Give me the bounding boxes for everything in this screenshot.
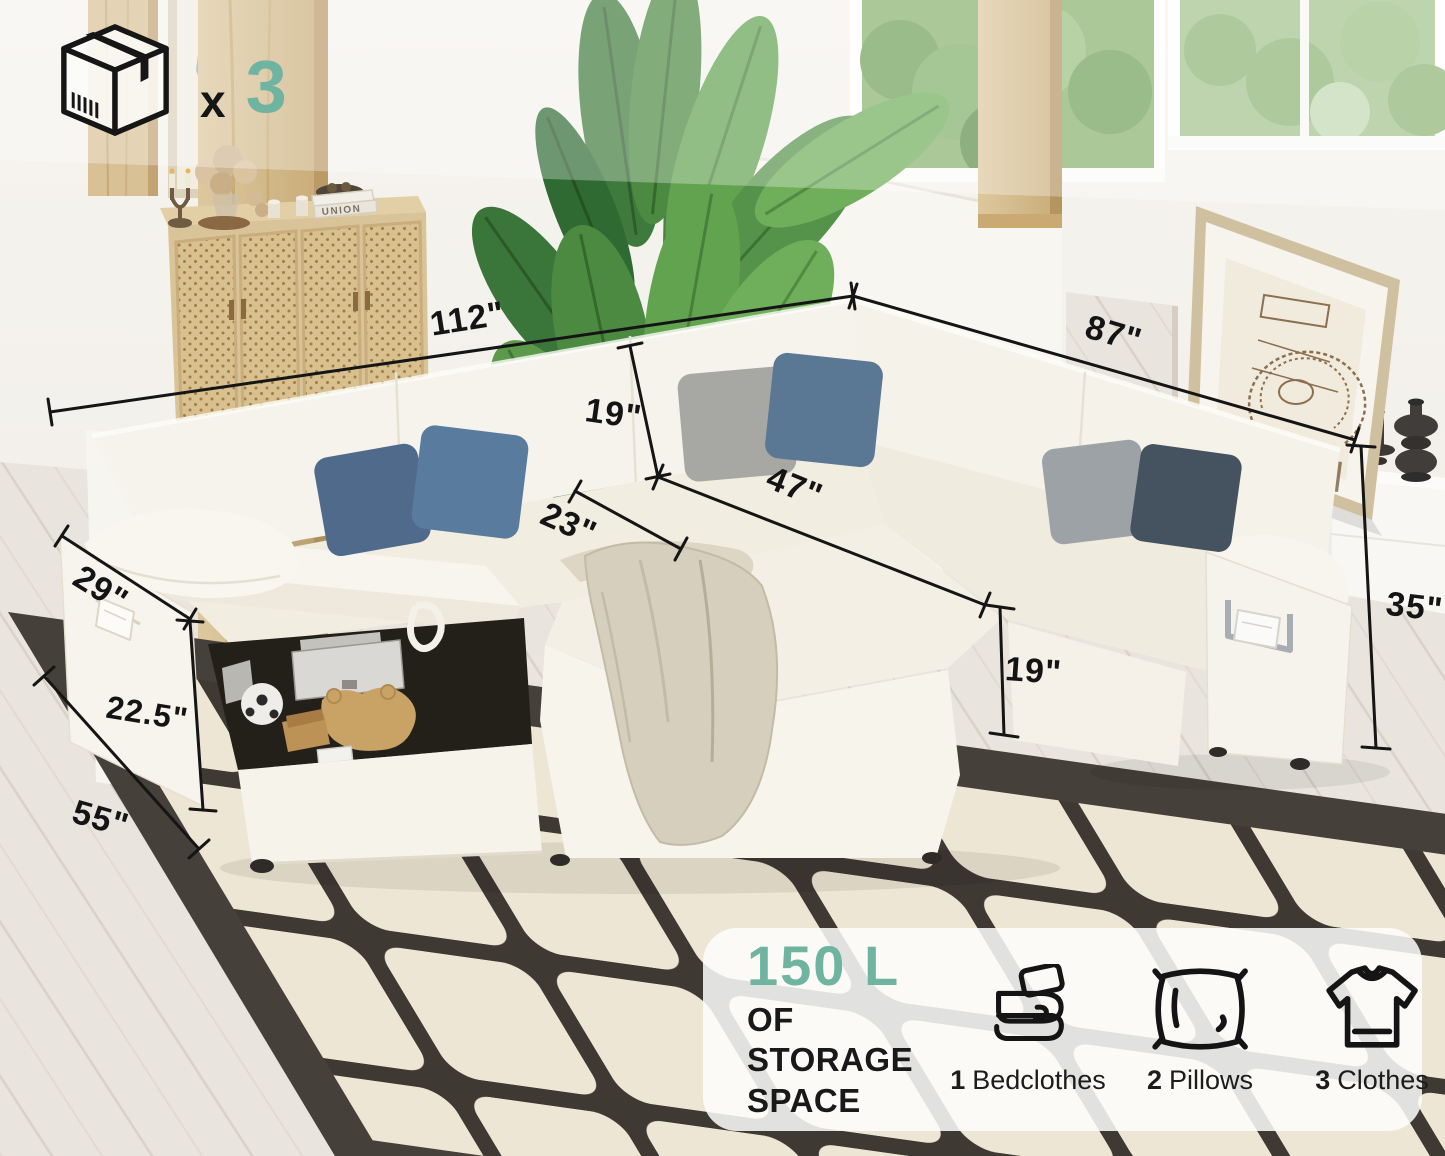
dimension-label-seat-height: 19" (1004, 650, 1064, 693)
storage-item-label: Pillows (1169, 1065, 1253, 1095)
package-count-badge: x 3 (56, 20, 287, 140)
package-count-value: 3 (246, 44, 287, 129)
dimension-label-overall-height: 35" (1384, 585, 1445, 631)
tshirt-icon (1321, 964, 1423, 1056)
storage-info-panel: 150 L OF STORAGE SPACE 1Bedclothes 2Pill… (703, 928, 1422, 1131)
dimension-label-backrest-height: 19" (583, 391, 645, 438)
storage-item-count: 1 (950, 1065, 965, 1095)
storage-item-bedclothes: 1Bedclothes (962, 964, 1094, 1096)
storage-item-label: Bedclothes (972, 1065, 1106, 1095)
storage-caption-line2: SPACE (747, 1081, 962, 1121)
storage-capacity-text: 150 L OF STORAGE SPACE (747, 938, 962, 1121)
storage-item-pillows: 2Pillows (1134, 964, 1266, 1096)
storage-caption-line1: OF STORAGE (747, 1000, 962, 1081)
storage-item-count: 2 (1147, 1065, 1162, 1095)
storage-item-clothes: 3Clothes (1306, 964, 1438, 1096)
bedclothes-icon (982, 964, 1074, 1056)
storage-item-list: 1Bedclothes 2Pillows 3Clothes (962, 964, 1438, 1096)
pillow-icon (1149, 964, 1251, 1056)
storage-capacity-value: 150 L (747, 938, 962, 994)
product-dimension-image: UNION (0, 0, 1445, 1156)
storage-item-label: Clothes (1337, 1065, 1429, 1095)
right-armrest (1206, 535, 1352, 764)
side-pocket-magazine (1234, 610, 1280, 648)
package-times-label: x (200, 74, 226, 128)
storage-item-count: 3 (1315, 1065, 1330, 1095)
box-icon (56, 20, 174, 140)
